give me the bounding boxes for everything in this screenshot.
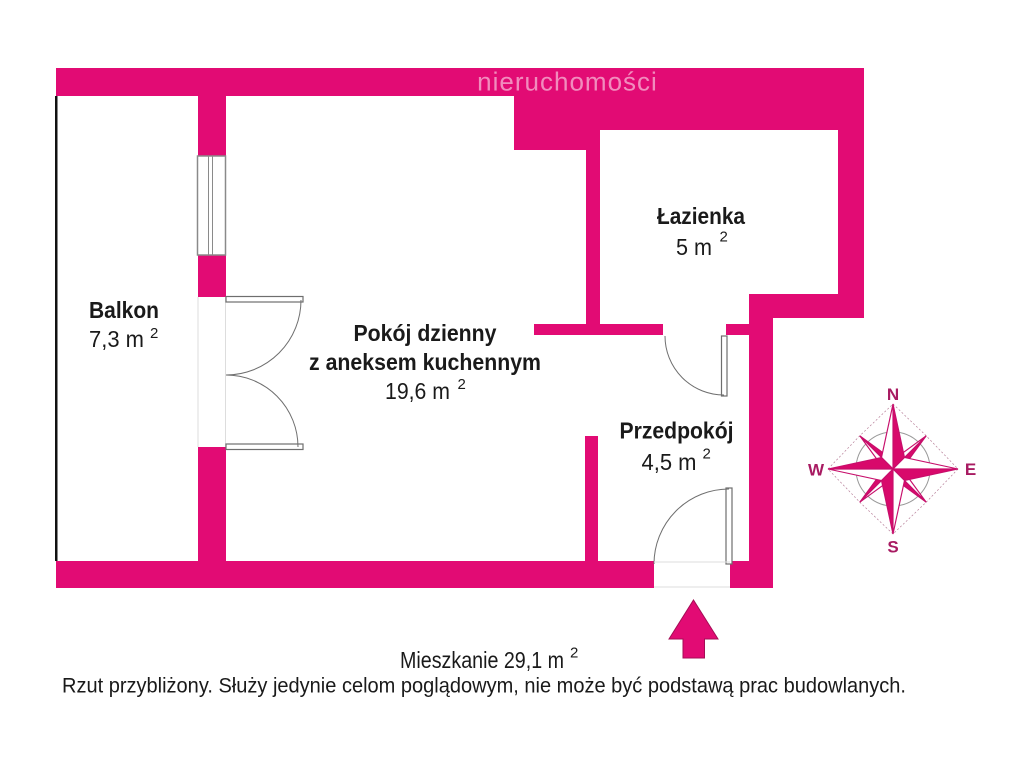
svg-text:2: 2 xyxy=(703,446,711,463)
svg-text:z aneksem kuchennym: z aneksem kuchennym xyxy=(309,349,541,375)
svg-text:Rzut przybliżony. Służy jedyni: Rzut przybliżony. Służy jedynie celom po… xyxy=(62,675,906,698)
svg-text:S: S xyxy=(887,538,898,557)
svg-text:W: W xyxy=(808,461,825,480)
svg-text:Mieszkanie 29,1 m: Mieszkanie 29,1 m xyxy=(400,647,564,673)
svg-text:2: 2 xyxy=(458,376,466,393)
svg-text:nieruchomości: nieruchomości xyxy=(477,67,658,97)
svg-text:Balkon: Balkon xyxy=(89,297,159,323)
svg-text:2: 2 xyxy=(720,229,728,246)
svg-text:5 m: 5 m xyxy=(676,234,712,260)
svg-text:E: E xyxy=(965,460,976,479)
svg-text:N: N xyxy=(887,385,899,404)
svg-text:2: 2 xyxy=(570,645,578,662)
svg-text:Pokój dzienny: Pokój dzienny xyxy=(354,320,497,346)
svg-text:7,3 m: 7,3 m xyxy=(89,326,144,352)
svg-text:Przedpokój: Przedpokój xyxy=(620,418,734,444)
svg-text:Łazienka: Łazienka xyxy=(657,203,745,229)
svg-text:19,6 m: 19,6 m xyxy=(385,378,450,404)
svg-text:2: 2 xyxy=(150,325,158,342)
svg-text:4,5 m: 4,5 m xyxy=(642,449,697,475)
